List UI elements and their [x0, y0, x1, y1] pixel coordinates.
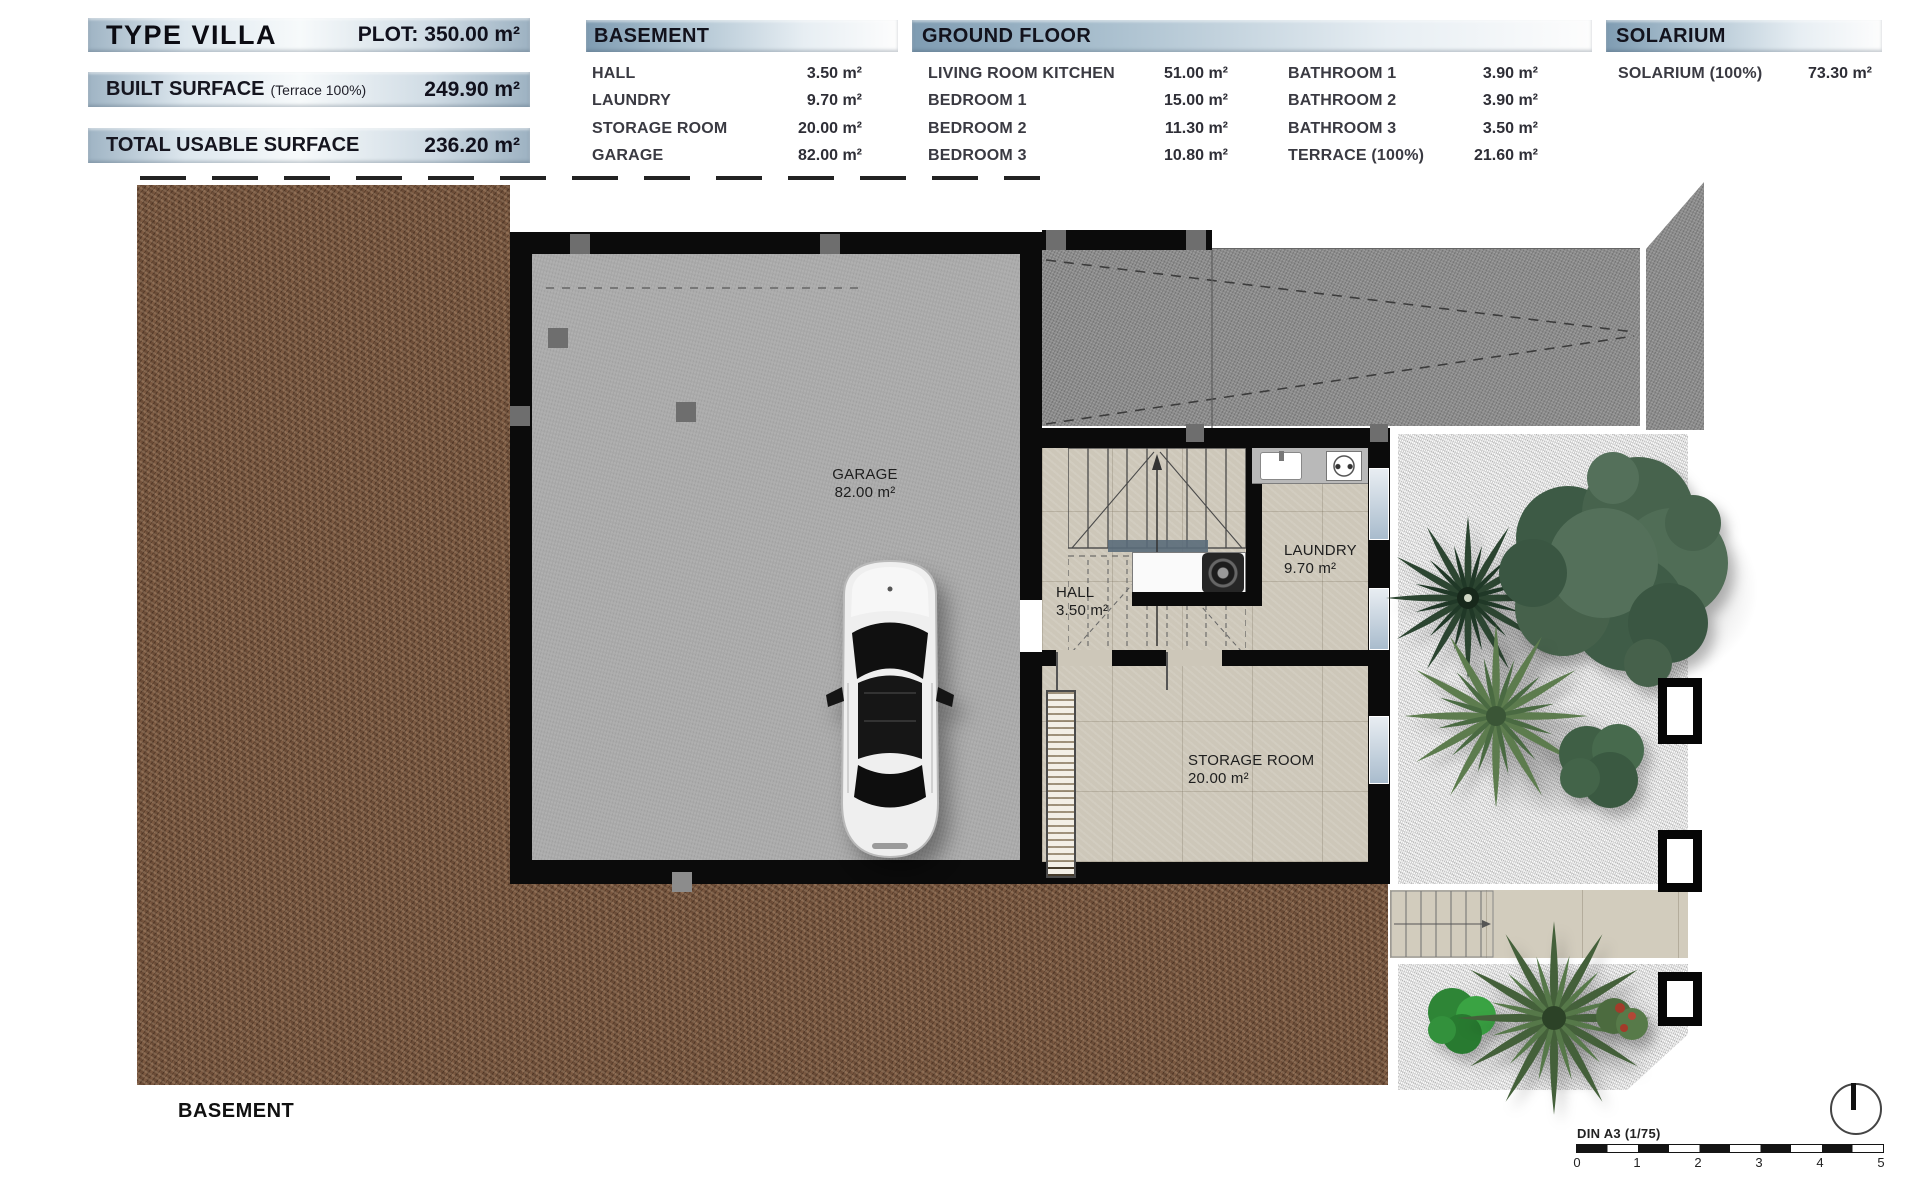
- block-bottom-wall: [1042, 862, 1390, 884]
- ground-floor-col1: LIVING ROOM KITCHEN 51.00 m² BEDROOM 1 1…: [928, 60, 1228, 170]
- driveway-side-strip: [1646, 182, 1704, 430]
- scale-tick: 5: [1877, 1155, 1884, 1170]
- washing-machine: [1202, 553, 1244, 593]
- scale-bar: [1576, 1144, 1884, 1153]
- table-row: BEDROOM 2 11.30 m²: [928, 115, 1228, 143]
- door-leaf: [1166, 652, 1168, 690]
- row-value: 3.90 m²: [1483, 65, 1538, 83]
- planter-frame: [1658, 678, 1702, 744]
- floor-plan-sheet: TYPE VILLA PLOT: 350.00 m² BUILT SURFACE…: [0, 0, 1920, 1188]
- room-area: 3.50 m²: [1056, 602, 1108, 620]
- scale-tick: 4: [1816, 1155, 1823, 1170]
- laundry-room-label: LAUNDRY 9.70 m²: [1284, 542, 1357, 578]
- table-row: STORAGE ROOM 20.00 m²: [592, 115, 862, 143]
- solarium-table: SOLARIUM (100%) 73.30 m²: [1618, 60, 1872, 88]
- row-label: LAUNDRY: [592, 92, 671, 110]
- ground-floor-table-header: GROUND FLOOR: [912, 20, 1592, 52]
- storage-shelving: [1046, 690, 1076, 878]
- door-leaf: [1056, 652, 1058, 690]
- car-top-view: [818, 552, 962, 870]
- ramp-direction-lines: [1042, 246, 1642, 432]
- row-value: 82.00 m²: [798, 147, 862, 165]
- room-name: STORAGE ROOM: [1188, 752, 1314, 770]
- row-value: 3.50 m²: [1483, 120, 1538, 138]
- room-name: GARAGE: [800, 466, 930, 484]
- scale-tick: 3: [1755, 1155, 1762, 1170]
- row-label: BEDROOM 3: [928, 147, 1027, 165]
- garage-beam-dashed-line: [546, 287, 858, 289]
- table-row: HALL 3.50 m²: [592, 60, 862, 88]
- row-value: 21.60 m²: [1474, 147, 1538, 165]
- basement-table-header: BASEMENT: [586, 20, 898, 52]
- window: [1369, 716, 1389, 784]
- room-name: LAUNDRY: [1284, 542, 1357, 560]
- room-area: 82.00 m²: [800, 484, 930, 502]
- column-marker: [672, 872, 692, 892]
- table-row: LIVING ROOM KITCHEN 51.00 m²: [928, 60, 1228, 88]
- row-label: STORAGE ROOM: [592, 120, 727, 138]
- plot-area-value: PLOT: 350.00 m²: [358, 23, 520, 47]
- row-label: TERRACE (100%): [1288, 147, 1424, 165]
- ground-floor-table-title: GROUND FLOOR: [922, 25, 1091, 48]
- row-label: BATHROOM 1: [1288, 65, 1396, 83]
- usable-surface-bar: TOTAL USABLE SURFACE 236.20 m²: [88, 128, 530, 163]
- row-label: BATHROOM 3: [1288, 120, 1396, 138]
- column-marker: [510, 406, 530, 426]
- door-opening: [1056, 650, 1112, 666]
- door-opening: [1166, 650, 1222, 666]
- scale-label: DIN A3 (1/75): [1577, 1126, 1661, 1141]
- built-surface-label-group: BUILT SURFACE (Terrace 100%): [106, 78, 366, 101]
- scale-tick: 2: [1694, 1155, 1701, 1170]
- room-area: 9.70 m²: [1284, 560, 1357, 578]
- scale-tick: 1: [1633, 1155, 1640, 1170]
- sheet-title: TYPE VILLA: [106, 20, 277, 51]
- solarium-table-title: SOLARIUM: [1616, 25, 1726, 48]
- row-value: 9.70 m²: [807, 92, 862, 110]
- table-row: BEDROOM 1 15.00 m²: [928, 88, 1228, 116]
- planter-frame: [1658, 972, 1702, 1026]
- table-row: TERRACE (100%) 21.60 m²: [1288, 143, 1538, 171]
- type-villa-bar: TYPE VILLA PLOT: 350.00 m²: [88, 18, 530, 52]
- built-surface-note: (Terrace 100%): [271, 82, 367, 98]
- column-marker: [1186, 424, 1204, 442]
- plot-boundary-line: [140, 176, 1040, 180]
- row-label: HALL: [592, 65, 635, 83]
- column-marker: [548, 328, 568, 348]
- built-surface-bar: BUILT SURFACE (Terrace 100%) 249.90 m²: [88, 72, 530, 107]
- row-value: 11.30 m²: [1165, 120, 1228, 138]
- row-value: 51.00 m²: [1164, 65, 1228, 83]
- floor-caption: BASEMENT: [178, 1100, 294, 1123]
- row-label: SOLARIUM (100%): [1618, 65, 1762, 83]
- laundry-sink: [1260, 452, 1302, 480]
- socket-symbol: [1326, 451, 1362, 481]
- bench-back-wall: [1132, 592, 1262, 606]
- garage-hall-door: [1020, 600, 1042, 652]
- column-marker: [676, 402, 696, 422]
- room-name: HALL: [1056, 584, 1108, 602]
- terrain-dirt-bottom: [137, 878, 1388, 1085]
- garage-room-label: GARAGE 82.00 m²: [800, 466, 930, 502]
- block-top-wall: [1042, 428, 1390, 448]
- hall-room-label: HALL 3.50 m²: [1056, 584, 1108, 620]
- built-surface-label: BUILT SURFACE: [106, 78, 265, 101]
- table-row: BEDROOM 3 10.80 m²: [928, 143, 1228, 171]
- north-indicator: [1830, 1083, 1882, 1135]
- solarium-table-header: SOLARIUM: [1606, 20, 1882, 52]
- garden-bush: [1542, 702, 1662, 822]
- column-marker: [570, 234, 590, 254]
- row-label: GARAGE: [592, 147, 663, 165]
- table-row: BATHROOM 2 3.90 m²: [1288, 88, 1538, 116]
- built-surface-value: 249.90 m²: [424, 78, 520, 102]
- storage-room-label: STORAGE ROOM 20.00 m²: [1188, 752, 1314, 788]
- row-value: 73.30 m²: [1808, 65, 1872, 83]
- usable-surface-value: 236.20 m²: [424, 134, 520, 158]
- row-label: BEDROOM 2: [928, 120, 1027, 138]
- row-label: BEDROOM 1: [928, 92, 1027, 110]
- flowering-shrub: [1587, 985, 1657, 1055]
- row-value: 15.00 m²: [1164, 92, 1228, 110]
- ground-floor-col2: BATHROOM 1 3.90 m² BATHROOM 2 3.90 m² BA…: [1288, 60, 1538, 170]
- table-row: LAUNDRY 9.70 m²: [592, 88, 862, 116]
- row-value: 3.90 m²: [1483, 92, 1538, 110]
- table-row: GARAGE 82.00 m²: [592, 143, 862, 171]
- planter-frame: [1658, 830, 1702, 892]
- row-label: BATHROOM 2: [1288, 92, 1396, 110]
- basement-table-title: BASEMENT: [594, 25, 709, 48]
- table-row: BATHROOM 3 3.50 m²: [1288, 115, 1538, 143]
- basement-table: HALL 3.50 m² LAUNDRY 9.70 m² STORAGE ROO…: [592, 60, 862, 170]
- table-row: BATHROOM 1 3.90 m²: [1288, 60, 1538, 88]
- column-marker: [1370, 424, 1388, 442]
- faucet-icon: [1279, 451, 1284, 461]
- room-area: 20.00 m²: [1188, 770, 1314, 788]
- row-label: LIVING ROOM KITCHEN: [928, 65, 1115, 83]
- table-row: SOLARIUM (100%) 73.30 m²: [1618, 60, 1872, 88]
- row-value: 20.00 m²: [798, 120, 862, 138]
- row-value: 3.50 m²: [807, 65, 862, 83]
- north-needle: [1851, 1083, 1856, 1110]
- scale-tick: 0: [1573, 1155, 1580, 1170]
- column-marker: [820, 234, 840, 254]
- usable-surface-label: TOTAL USABLE SURFACE: [106, 134, 359, 157]
- row-value: 10.80 m²: [1164, 147, 1228, 165]
